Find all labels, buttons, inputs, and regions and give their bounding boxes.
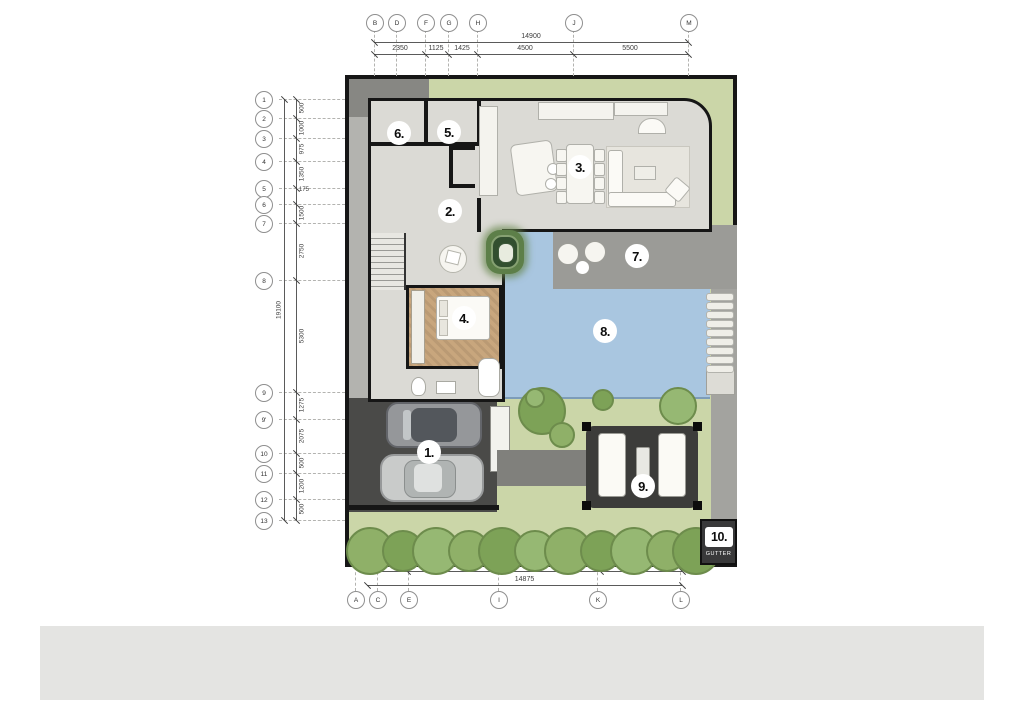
dimension-label: 1200 <box>299 479 306 493</box>
grid-bubble: A <box>347 591 365 609</box>
grid-extension-line <box>279 138 345 139</box>
dimension-label: 500 <box>299 103 306 114</box>
room-number-badge: 2. <box>438 199 462 223</box>
room-number-badge: 7. <box>625 244 649 268</box>
room-number-badge: 9. <box>631 474 655 498</box>
dimension-label: 175 <box>299 187 309 193</box>
grid-bubble: 7 <box>255 215 273 233</box>
grid-bubble: B <box>366 14 384 32</box>
grid-bubble: L <box>672 591 690 609</box>
room-number-badge: 6. <box>387 121 411 145</box>
grid-bubble: G <box>440 14 458 32</box>
dimension-label: 19100 <box>276 301 283 319</box>
grid-extension-line <box>279 204 345 205</box>
room-number-badge: 5. <box>437 120 461 144</box>
dimension-label: 1125 <box>428 45 443 52</box>
grid-bubble: 4 <box>255 153 273 171</box>
room-number-badge: 10. <box>705 527 733 547</box>
dimension-label: 1350 <box>299 167 306 181</box>
grid-extension-line <box>279 118 345 119</box>
dimension-label: 500 <box>299 504 306 515</box>
grid-bubble: 9 <box>255 384 273 402</box>
dimension-label: 14900 <box>521 33 540 40</box>
dimension-line <box>367 585 682 586</box>
grid-extension-line <box>279 473 345 474</box>
grid-bubble: K <box>589 591 607 609</box>
grid-bubble: M <box>680 14 698 32</box>
dimension-label: 5300 <box>299 329 306 343</box>
tree <box>592 389 614 411</box>
grid-extension-line <box>279 223 345 224</box>
dimension-label: 4500 <box>517 45 533 52</box>
grid-bubble: 9' <box>255 411 273 429</box>
dimension-label: 1425 <box>454 45 470 52</box>
tree <box>549 422 575 448</box>
grid-bubble: I <box>490 591 508 609</box>
grid-annotations: BDFGHJM149002350112514254500550012345678… <box>0 0 1024 724</box>
grid-bubble: 13 <box>255 512 273 530</box>
room-number-badge: 1. <box>417 440 441 464</box>
gutter-label: GUTTER <box>702 551 735 557</box>
grid-extension-line <box>279 453 345 454</box>
dimension-label: 14875 <box>515 576 534 583</box>
grid-extension-line <box>279 419 345 420</box>
grid-bubble: 11 <box>255 465 273 483</box>
dimension-label: 2750 <box>299 244 306 258</box>
grid-extension-line <box>279 99 345 100</box>
grid-extension-line <box>279 520 345 521</box>
room-number-badge: 4. <box>452 306 476 330</box>
dimension-label: 2350 <box>392 45 408 52</box>
dimension-label: 1000 <box>299 121 306 135</box>
grid-bubble: 10 <box>255 445 273 463</box>
dimension-label: 5500 <box>622 45 638 52</box>
pump-room: 10. GUTTER <box>700 519 737 565</box>
grid-bubble: D <box>388 14 406 32</box>
grid-bubble: 12 <box>255 491 273 509</box>
grid-bubble: E <box>400 591 418 609</box>
grid-extension-line <box>279 188 345 189</box>
room-number-badge: 8. <box>593 319 617 343</box>
grid-bubble: 2 <box>255 110 273 128</box>
grid-bubble: 3 <box>255 130 273 148</box>
grid-bubble: F <box>417 14 435 32</box>
grid-bubble: H <box>469 14 487 32</box>
dimension-label: 1500 <box>299 206 306 220</box>
dimension-line <box>284 99 285 520</box>
dimension-label: 975 <box>299 144 306 155</box>
grid-bubble: 8 <box>255 272 273 290</box>
title-bar: NATURE'S REST KEY PLAN แปลนชั้นที่ 1 1st… <box>40 626 984 700</box>
grid-bubble: J <box>565 14 583 32</box>
dimension-line <box>374 42 688 43</box>
tree <box>659 387 697 425</box>
dimension-line <box>374 54 688 55</box>
dimension-label: 500 <box>299 458 306 469</box>
dimension-label: 1275 <box>299 398 306 412</box>
grid-extension-line <box>279 280 345 281</box>
room-number-badge: 3. <box>568 155 592 179</box>
grid-bubble: C <box>369 591 387 609</box>
grid-extension-line <box>279 161 345 162</box>
floor-plan-sheet: 10. GUTTER 1.2.3.4.5.6.7.8.9. BDFGHJM149… <box>0 0 1024 724</box>
tree <box>525 388 545 408</box>
grid-extension-line <box>279 499 345 500</box>
dimension-label: 2075 <box>299 429 306 443</box>
grid-bubble: 1 <box>255 91 273 109</box>
grid-bubble: 6 <box>255 196 273 214</box>
grid-extension-line <box>396 30 397 76</box>
grid-extension-line <box>279 392 345 393</box>
